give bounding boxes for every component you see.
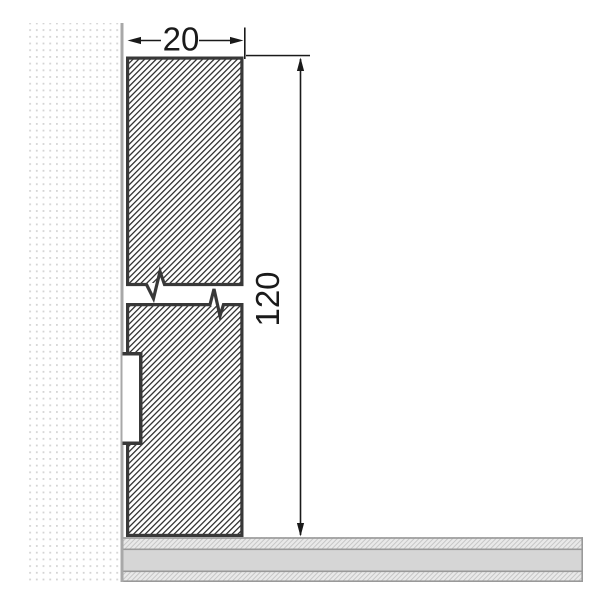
skirting-profile-upper [126,57,244,299]
floor-section [124,537,584,582]
notch-cavity [123,356,140,442]
height-arrow-top [297,58,304,72]
height-dimension: 120 [246,55,310,537]
wall-dotted-area [25,23,121,582]
profile-lower-right-border [240,303,243,537]
profile-upper-right-border [240,57,243,287]
notch-inner-edge [139,352,143,445]
floor-top-layer [124,537,584,548]
drawing-canvas: 20 120 [0,0,604,604]
floor-line-2 [124,549,584,551]
height-dimension-label: 120 [249,271,286,326]
floor-bottom-layer [124,571,584,582]
mounting-notch [123,352,143,445]
width-arrow-right [230,37,244,44]
profile-upper-left-border [126,57,129,287]
wall-section [25,23,124,582]
width-dimension: 20 [128,21,246,60]
floor-core-layer [124,549,584,571]
profile-upper-hatch [126,57,244,284]
profile-lower-hatch [126,306,244,537]
width-dimension-label: 20 [163,21,200,58]
floor-line-1 [124,537,584,539]
technical-drawing: 20 120 [0,0,604,604]
floor-line-4 [124,580,584,582]
height-extension-line [246,55,310,57]
wall-edge-line [121,23,124,582]
height-dim-line [300,59,302,535]
height-arrow-bottom [297,523,304,537]
floor-line-3 [124,571,584,573]
profile-lower-bottom-border [126,534,244,537]
floor-right-edge [581,537,583,582]
profile-lower-left-border-top [126,303,129,352]
width-extension-line [244,28,246,60]
skirting-profile-lower [123,289,244,537]
profile-lower-left-border-bottom [126,445,129,537]
width-arrow-left [128,37,142,44]
